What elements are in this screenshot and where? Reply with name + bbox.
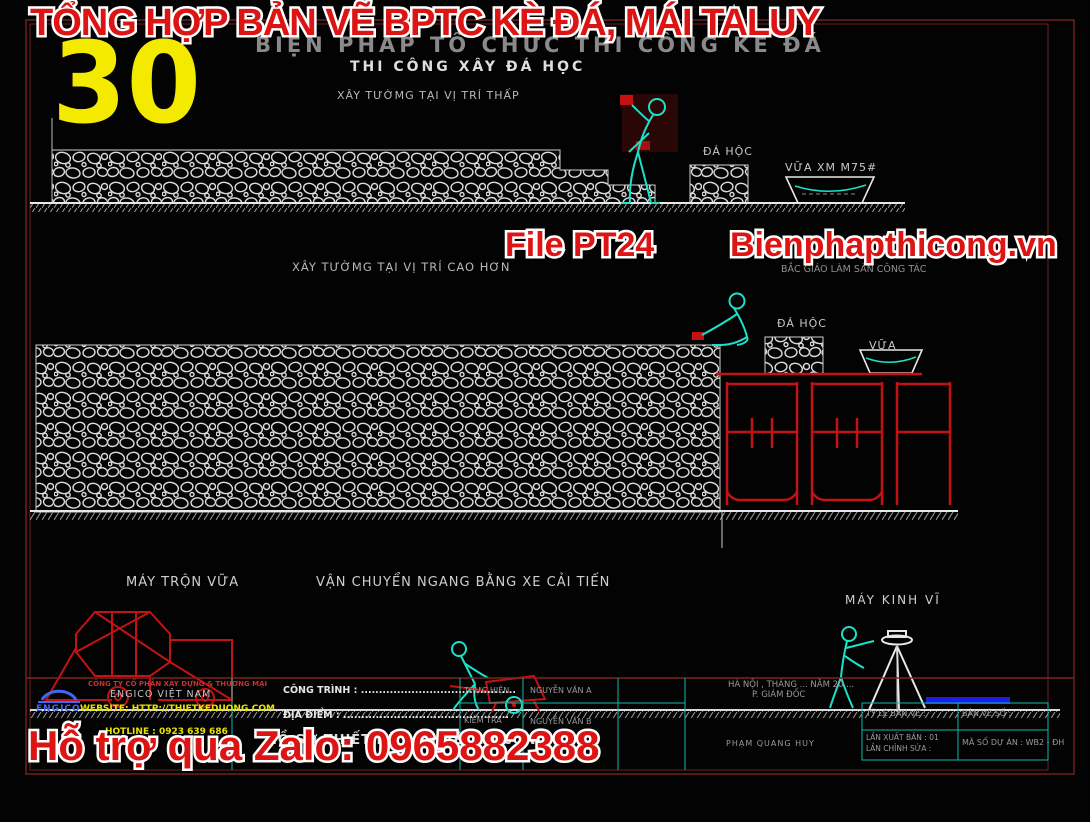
revision-label: LẦN CHỈNH SỬA : [866, 744, 931, 753]
high-wall-stone-label: ĐÁ HỘC [777, 318, 827, 331]
surveyor-theodolite [830, 627, 1010, 712]
watermark-zalo: Hỗ trợ qua Zalo: 0965882388 [28, 722, 599, 770]
edition-label: LẦN XUẤT BẢN : 01 [866, 733, 939, 742]
watermark-file-label: File PT24 [505, 226, 654, 265]
scaffold-frames [716, 374, 950, 505]
worker-laying-stone-2 [692, 294, 747, 346]
sheet-sub-title: THI CÔNG XÂY ĐÁ HỌC [350, 59, 585, 75]
engico-logo-text: ENGICO [36, 704, 81, 715]
role1-label: THỰC HIỆN [464, 686, 509, 696]
watermark-top-title: TỔNG HỢP BẢN VẼ BPTC KÈ ĐÁ, MÁI TALUY [30, 2, 820, 45]
scale-label: TỶ LỆ BẢN VẼ : [866, 709, 926, 719]
sheet-number: 30 [52, 32, 201, 139]
mixer-caption: MÁY TRỘN VỮA [126, 576, 239, 591]
company-website: WEBSITE: HTTP://THIETKEDUONG.COM [80, 704, 275, 715]
watermark-site: Bienphapthicong.vn [730, 226, 1057, 265]
theodolite-caption: MÁY KINH VĨ [845, 594, 941, 608]
low-wall-stone-label: ĐÁ HỘC [703, 146, 753, 159]
high-wall-caption: XÂY TƯỜMG TẠI VỊ TRÍ CAO HƠN [292, 261, 510, 274]
cart-caption: VẬN CHUYỂN NGANG BẰNG XE CẢI TIẾN [316, 576, 610, 591]
scaffold-caption: BẮC GIÁO LÀM SÀN CÔNG TÁC [781, 265, 926, 276]
high-wall-drawing [30, 294, 958, 549]
company-line2: ENGICO VIỆT NAM [110, 689, 211, 700]
place-date: HÀ NỘI , THÁNG ... NĂM 20 ... [728, 680, 854, 690]
mortar-trough-2 [860, 350, 922, 373]
project-code-label: MÃ SỐ DỰ ÁN : WB2 - ĐH [962, 738, 1064, 748]
name1-label: NGUYỄN VĂN A [530, 686, 591, 696]
low-wall-mortar-label: VỮA XM M75# [785, 162, 877, 175]
company-line1: CÔNG TY CỔ PHẦN XÂY DỰNG & THƯƠNG MẠI [88, 680, 267, 688]
signer-name: PHẠM QUANG HUY [726, 739, 815, 749]
drawing-no-label: BẢN VẼ SỐ : [962, 709, 1011, 719]
equipment-row [30, 612, 1060, 718]
high-wall-mortar-label: VỮA [869, 340, 897, 353]
mortar-trough-1 [786, 177, 874, 203]
signer-title: P. GIÁM ĐỐC [752, 690, 805, 700]
low-wall-caption: XÂY TƯỜMG TẠI VỊ TRÍ THẤP [337, 90, 520, 103]
cad-sheet: BIỆN PHÁP TỔ CHỨC THI CÔNG KÈ ĐÁ THI CÔN… [0, 0, 1090, 822]
